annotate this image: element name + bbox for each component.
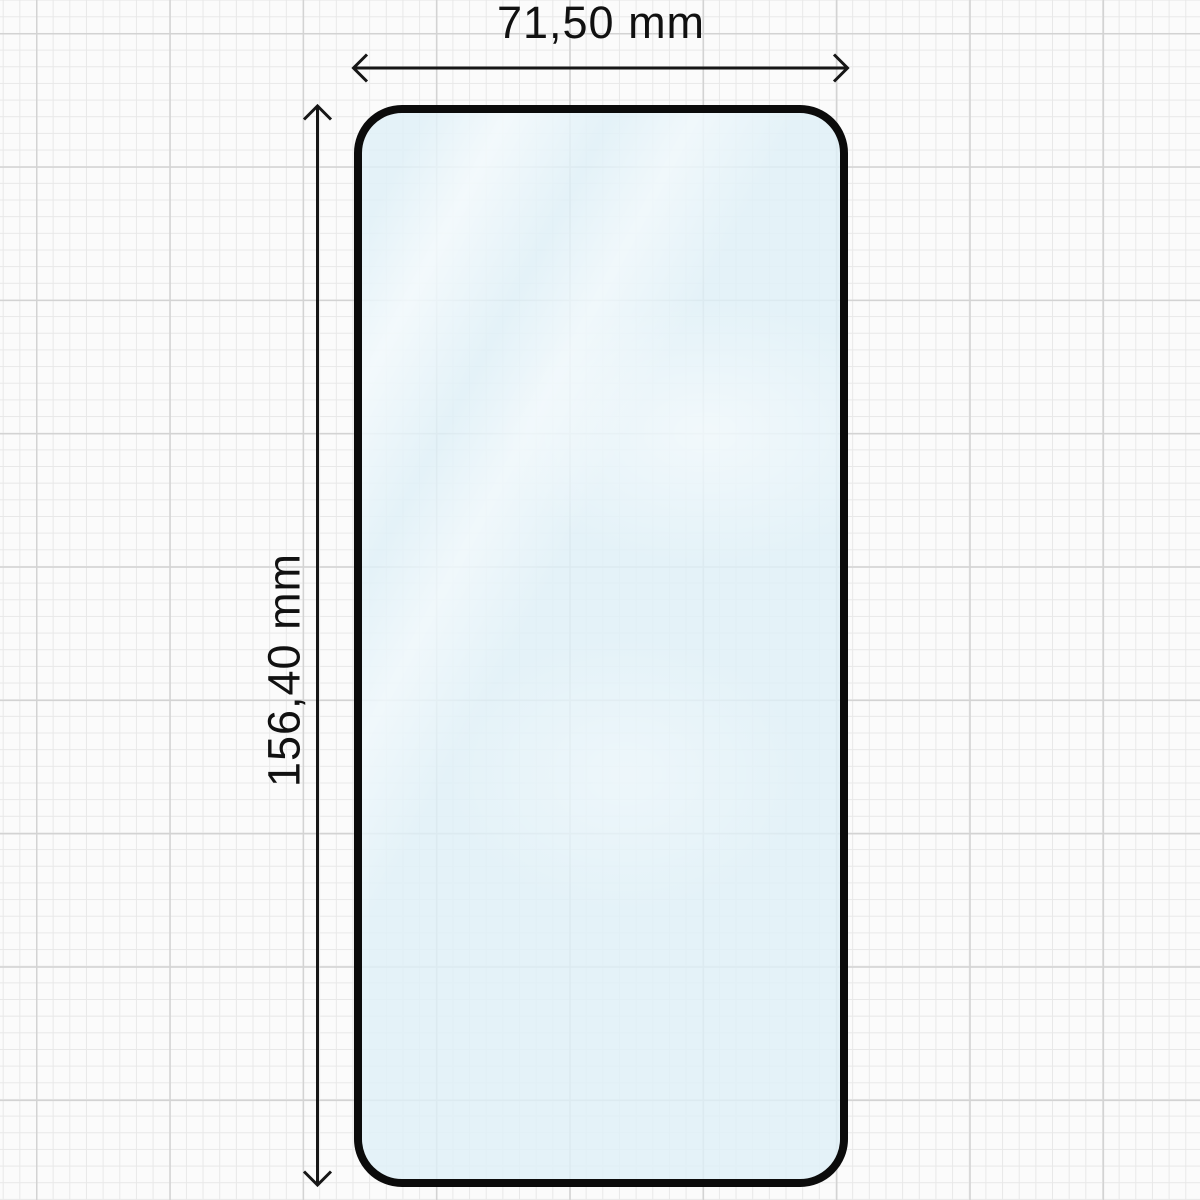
width-dimension-label: 71,50 mm xyxy=(354,0,848,48)
glass-reflection xyxy=(362,113,840,1179)
height-dimension-label: 156,40 mm xyxy=(259,553,309,787)
screen-protector-glass xyxy=(354,105,848,1187)
